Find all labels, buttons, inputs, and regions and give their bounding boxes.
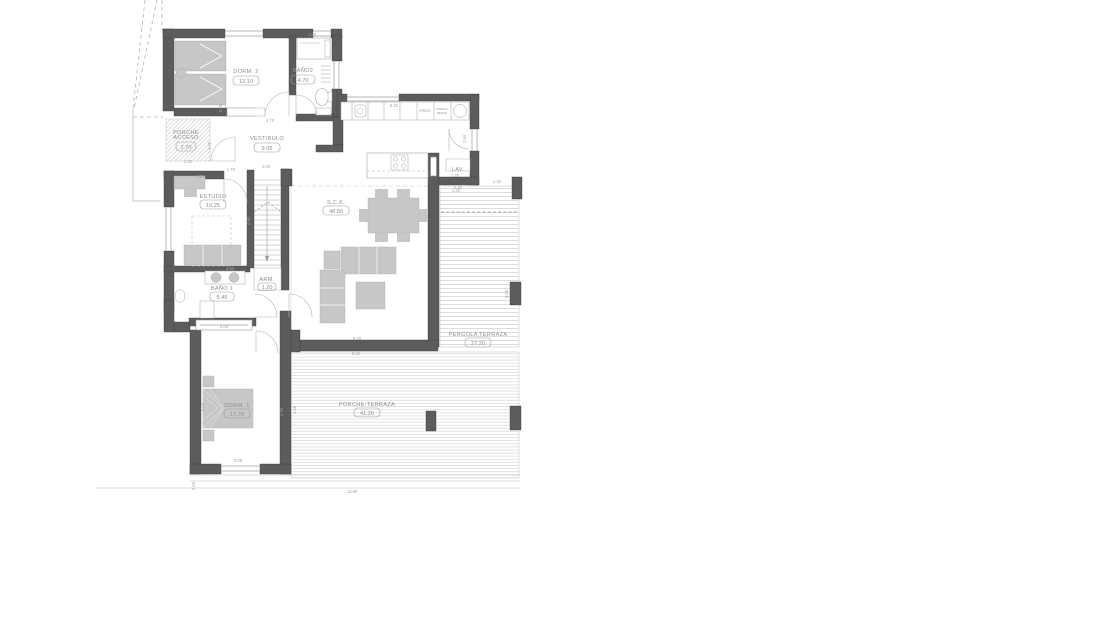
svg-text:5.32: 5.32 [390, 103, 399, 108]
svg-text:6.20: 6.20 [353, 336, 362, 341]
svg-text:1.20: 1.20 [262, 285, 273, 291]
svg-text:2.70: 2.70 [181, 145, 192, 151]
svg-text:0.90: 0.90 [218, 103, 223, 112]
svg-text:2.60: 2.60 [462, 134, 467, 143]
svg-text:0.50: 0.50 [191, 481, 196, 490]
svg-text:1.50: 1.50 [308, 32, 317, 37]
svg-text:1.30: 1.30 [493, 179, 502, 184]
svg-text:BAÑO2: BAÑO2 [293, 67, 313, 74]
svg-text:1.20: 1.20 [451, 173, 460, 178]
svg-text:1.00: 1.00 [262, 164, 271, 169]
svg-text:2.90: 2.90 [226, 266, 235, 271]
svg-text:1.50: 1.50 [184, 159, 193, 164]
svg-text:1.70: 1.70 [227, 167, 236, 172]
svg-text:17.70: 17.70 [230, 412, 244, 418]
svg-text:9.05: 9.05 [262, 146, 273, 152]
svg-text:0.65: 0.65 [504, 289, 509, 298]
svg-text:48.50: 48.50 [329, 209, 343, 215]
svg-text:4.00: 4.00 [207, 141, 212, 150]
svg-text:4.59: 4.59 [292, 405, 297, 414]
svg-text:ARM.: ARM. [259, 277, 274, 283]
svg-text:ACCESO: ACCESO [173, 135, 199, 141]
svg-text:4.75: 4.75 [279, 407, 284, 416]
svg-text:ESTUDIO: ESTUDIO [200, 194, 227, 200]
svg-text:5.45: 5.45 [217, 295, 228, 301]
svg-text:DORM. 2: DORM. 2 [233, 69, 258, 75]
svg-text:4.70: 4.70 [266, 118, 275, 123]
svg-text:4.70: 4.70 [298, 78, 309, 84]
svg-text:DORM. 1: DORM. 1 [224, 403, 249, 409]
svg-text:6.50: 6.50 [352, 351, 361, 356]
svg-text:12.10: 12.10 [239, 79, 253, 85]
svg-text:5.00: 5.00 [200, 402, 205, 411]
svg-text:2.90: 2.90 [196, 174, 205, 179]
svg-text:FRIGO: FRIGO [419, 109, 431, 113]
svg-text:1.40: 1.40 [452, 188, 461, 193]
svg-text:2.00: 2.00 [220, 324, 229, 329]
svg-text:PORCHE-TERRAZA: PORCHE-TERRAZA [339, 402, 395, 408]
svg-text:10.25: 10.25 [206, 203, 220, 209]
svg-text:S.C.K.: S.C.K. [327, 200, 345, 206]
svg-text:27.20: 27.20 [471, 341, 485, 347]
svg-text:4.50: 4.50 [246, 216, 251, 225]
svg-text:MICRO: MICRO [437, 111, 448, 115]
svg-text:VESTIBULO: VESTIBULO [250, 136, 284, 142]
svg-text:12.90: 12.90 [347, 489, 358, 494]
svg-text:41.20: 41.20 [360, 411, 374, 417]
svg-text:BAÑO 1: BAÑO 1 [211, 285, 233, 292]
svg-text:PERGOLA TERRAZA: PERGOLA TERRAZA [449, 332, 508, 338]
svg-text:3.08: 3.08 [234, 458, 243, 463]
